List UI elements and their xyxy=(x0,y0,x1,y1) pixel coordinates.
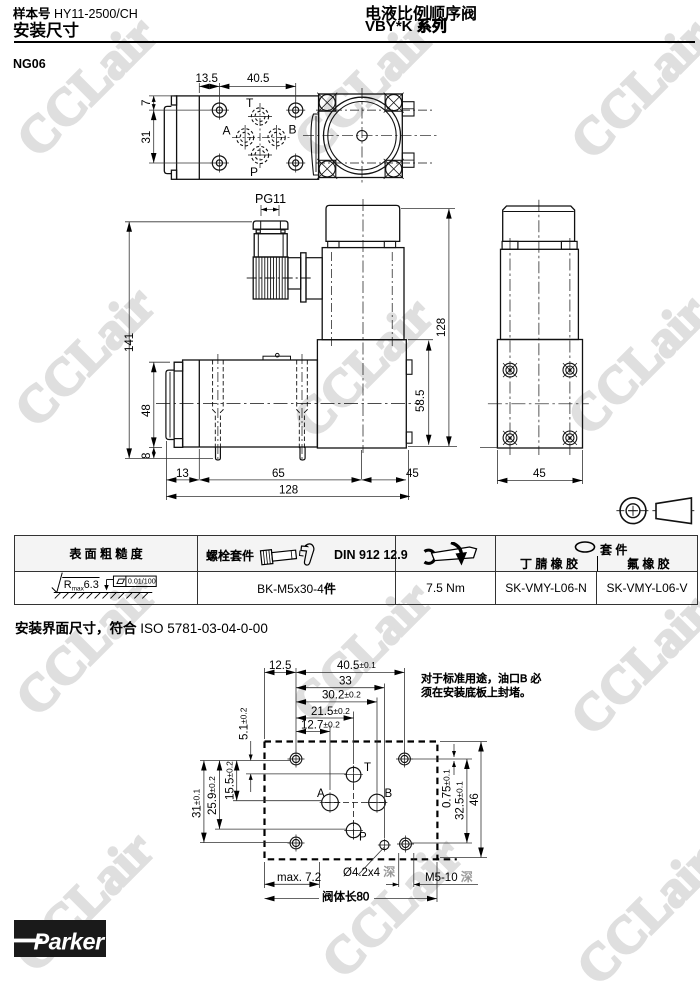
svg-text:PG11: PG11 xyxy=(255,192,286,206)
svg-text:T: T xyxy=(364,762,371,774)
svg-text:T: T xyxy=(246,96,254,110)
svg-text:45: 45 xyxy=(533,468,546,480)
svg-text:12.7±0.2: 12.7±0.2 xyxy=(301,720,340,732)
svg-text:8: 8 xyxy=(141,453,153,459)
svg-text:65: 65 xyxy=(272,468,285,480)
svg-text:13: 13 xyxy=(176,468,189,480)
svg-text:阀体长80: 阀体长80 xyxy=(322,890,369,904)
svg-text:13.5: 13.5 xyxy=(196,73,218,85)
svg-text:Ø4.2x4 深: Ø4.2x4 深 xyxy=(343,865,395,879)
svg-text:B: B xyxy=(289,123,297,137)
svg-text:max. 7.2: max. 7.2 xyxy=(277,872,321,884)
svg-text:7: 7 xyxy=(141,100,153,106)
svg-text:15.5±0.2: 15.5±0.2 xyxy=(224,761,236,800)
svg-text:31±0.1: 31±0.1 xyxy=(192,788,204,818)
svg-text:31: 31 xyxy=(141,131,153,144)
svg-text:48: 48 xyxy=(141,404,153,417)
svg-text:P: P xyxy=(250,165,258,179)
svg-text:5.1±0.2: 5.1±0.2 xyxy=(238,707,250,740)
svg-text:B: B xyxy=(385,788,393,800)
svg-text:0.75±0.1: 0.75±0.1 xyxy=(442,769,454,808)
svg-text:P: P xyxy=(359,832,367,844)
svg-text:58.5: 58.5 xyxy=(415,390,427,412)
svg-text:30.2±0.2: 30.2±0.2 xyxy=(322,690,361,702)
svg-text:A: A xyxy=(317,788,325,800)
svg-text:141: 141 xyxy=(124,333,136,352)
svg-text:46: 46 xyxy=(469,793,481,806)
svg-text:40.5: 40.5 xyxy=(247,73,269,85)
svg-text:32.5±0.1: 32.5±0.1 xyxy=(455,781,467,820)
svg-text:40.5±0.1: 40.5±0.1 xyxy=(337,660,376,672)
svg-text:45: 45 xyxy=(406,468,419,480)
svg-text:128: 128 xyxy=(279,485,298,497)
svg-text:A: A xyxy=(223,124,231,138)
svg-text:12.5: 12.5 xyxy=(269,660,291,672)
svg-text:25.9±0.2: 25.9±0.2 xyxy=(207,776,219,815)
svg-text:M5-10 深: M5-10 深 xyxy=(425,870,473,884)
svg-text:21.5±0.2: 21.5±0.2 xyxy=(311,706,350,718)
svg-text:33: 33 xyxy=(339,676,352,688)
svg-text:128: 128 xyxy=(436,318,448,337)
